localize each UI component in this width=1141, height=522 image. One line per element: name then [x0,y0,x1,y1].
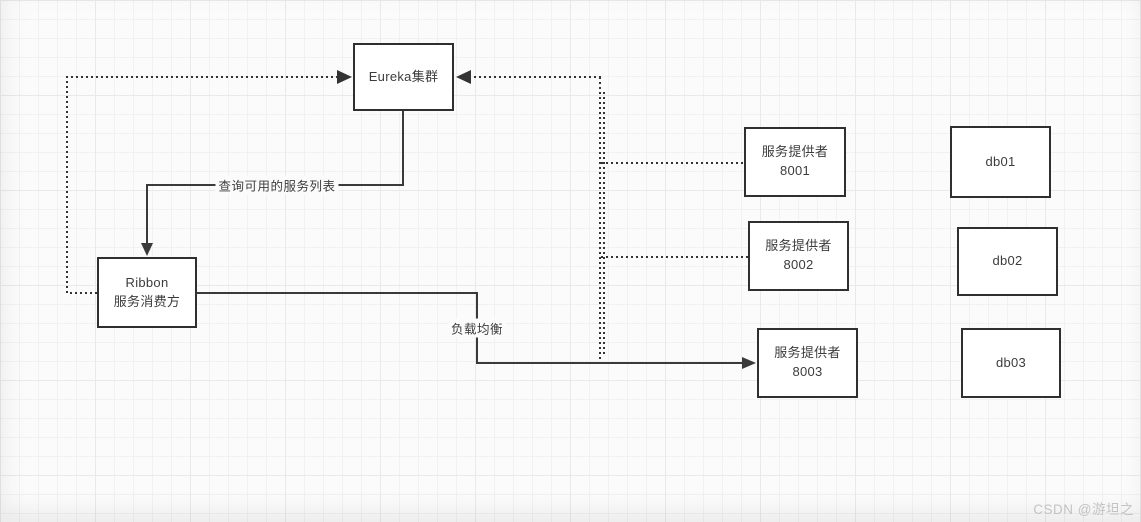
arrowhead-right-eureka [337,70,352,84]
node-provider-8002-title: 服务提供者 [765,237,832,256]
node-db01-label: db01 [985,153,1015,172]
node-provider-8001: 服务提供者 8001 [744,127,846,197]
node-ribbon-title: Ribbon [126,274,169,293]
node-db03-label: db03 [996,354,1026,373]
node-ribbon-consumer: Ribbon 服务消费方 [97,257,197,328]
node-provider-8001-port: 8001 [780,162,810,181]
node-eureka-label: Eureka集群 [369,68,439,87]
arrowhead-right-8003 [742,357,756,369]
node-db02: db02 [957,227,1058,296]
edge-label-query-services: 查询可用的服务列表 [215,176,338,195]
node-db02-label: db02 [992,252,1022,271]
diagram-canvas: Eureka集群 Ribbon 服务消费方 服务提供者 8001 服务提供者 8… [0,0,1141,522]
arrowhead-left-eureka [456,70,471,84]
node-provider-8002-port: 8002 [783,256,813,275]
node-provider-8003-title: 服务提供者 [774,344,841,363]
edge-label-load-balance: 负载均衡 [448,319,506,338]
node-db01: db01 [950,126,1051,198]
edge-providers-to-eureka-dotted [472,77,748,360]
node-ribbon-subtitle: 服务消费方 [114,293,181,312]
node-provider-8003: 服务提供者 8003 [757,328,858,398]
node-db03: db03 [961,328,1061,398]
node-provider-8003-port: 8003 [792,363,822,382]
node-provider-8002: 服务提供者 8002 [748,221,849,291]
node-eureka-cluster: Eureka集群 [353,43,454,111]
arrowhead-down-ribbon [141,243,153,256]
node-provider-8001-title: 服务提供者 [762,143,829,162]
csdn-watermark: CSDN @游坦之 [1033,498,1134,518]
